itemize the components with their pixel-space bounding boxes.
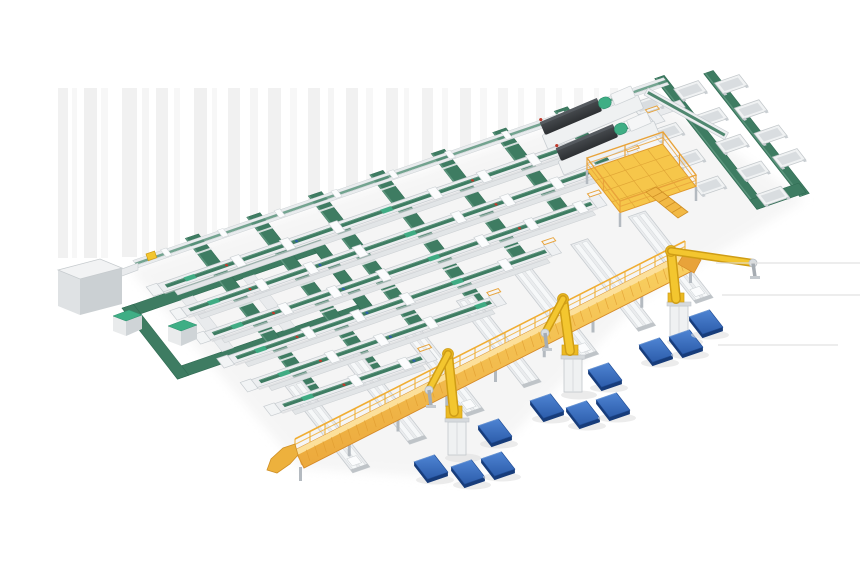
shadow-streak — [194, 88, 207, 240]
shadow-streak — [366, 88, 373, 185]
gantry-leg — [299, 467, 302, 481]
shadow-streak — [308, 88, 320, 204]
shadow-streak — [404, 88, 409, 172]
warehouse-render: Isometric 3D render of an automated parc… — [0, 0, 860, 580]
shadow-streak — [386, 88, 398, 178]
shadow-streak — [84, 88, 97, 258]
robot-gripper — [542, 348, 552, 351]
shadow-streak — [250, 88, 258, 223]
gantry-end-ramp — [267, 444, 298, 473]
robot-tool-shaft — [545, 333, 547, 349]
shadow-streak — [72, 88, 77, 258]
shadow-streak — [460, 88, 471, 153]
shadow-streak — [174, 88, 180, 247]
shadow-streak — [268, 88, 281, 217]
shadow-streak — [212, 88, 217, 235]
shadow-streak — [422, 88, 433, 166]
shadow-streak — [122, 88, 137, 257]
robot-upper-arm — [671, 251, 676, 299]
shadow-streak — [58, 88, 68, 258]
robot-tool-shaft — [753, 263, 755, 277]
shadow-streak — [442, 88, 448, 160]
shadow-streak — [101, 88, 108, 258]
shadow-streak — [346, 88, 358, 191]
pallet-station — [588, 363, 628, 393]
robot-pedestal-plate — [561, 355, 585, 359]
shadow-streak — [228, 88, 240, 229]
robot-tool-shaft — [429, 390, 431, 406]
green-top-cabinet — [113, 310, 142, 336]
shadow-streak — [142, 88, 149, 256]
robot-gripper — [750, 276, 760, 279]
shadow-streak — [290, 88, 297, 210]
shadow-streak — [156, 88, 168, 252]
shadow-streak — [328, 88, 334, 198]
robot-pedestal-plate — [445, 418, 469, 422]
warehouse-render-stage: Isometric 3D render of an automated parc… — [0, 0, 860, 580]
pallet-station — [689, 310, 729, 340]
pallet-station — [596, 393, 636, 423]
side-shadow-lines — [716, 263, 860, 345]
shadow-streak — [480, 88, 487, 147]
robot-gripper — [426, 405, 436, 408]
